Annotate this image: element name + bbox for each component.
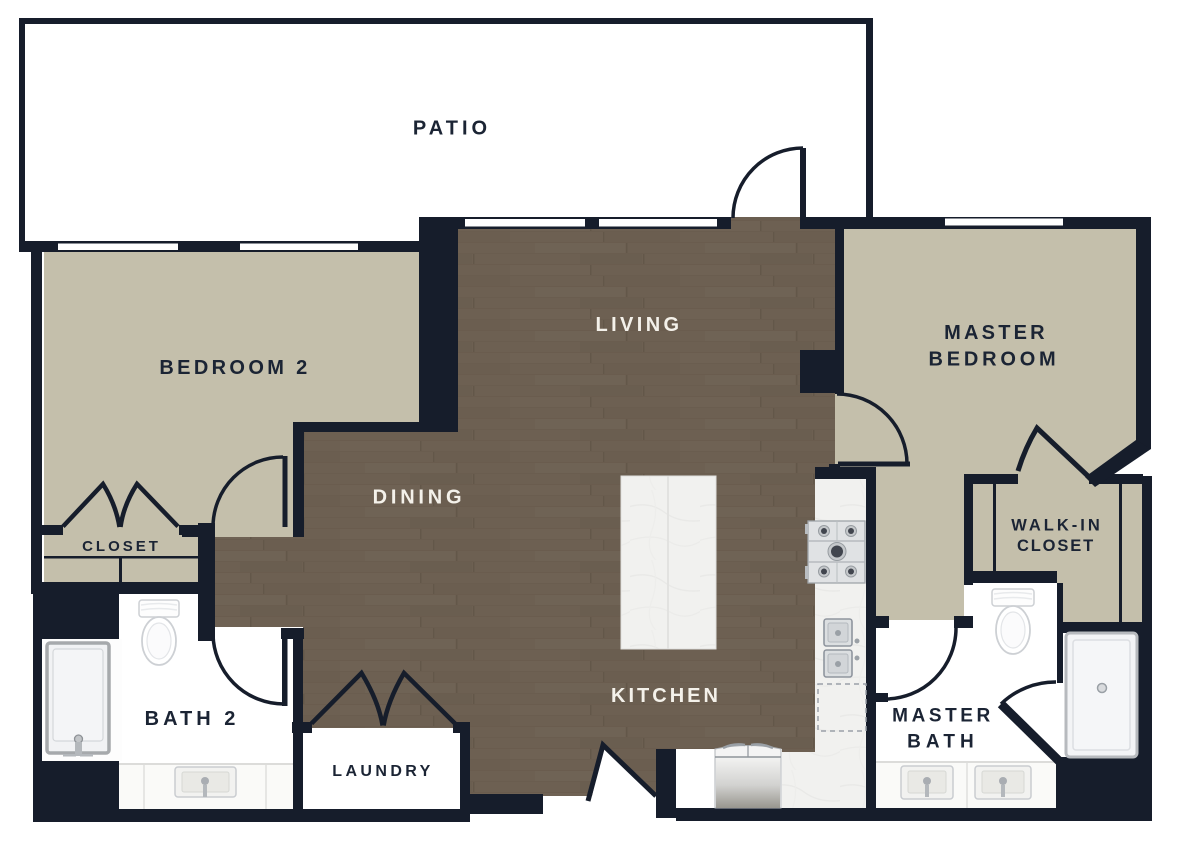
- svg-text:DINING: DINING: [373, 487, 466, 509]
- svg-text:WALK-IN: WALK-IN: [1011, 517, 1103, 535]
- svg-text:MASTER: MASTER: [944, 322, 1048, 344]
- svg-text:BATH 2: BATH 2: [145, 708, 240, 730]
- svg-text:BEDROOM: BEDROOM: [928, 349, 1059, 371]
- svg-text:BATH: BATH: [907, 732, 979, 753]
- svg-text:CLOSET: CLOSET: [1017, 537, 1095, 555]
- svg-text:MASTER: MASTER: [892, 706, 994, 727]
- svg-text:PATIO: PATIO: [413, 118, 491, 140]
- svg-text:KITCHEN: KITCHEN: [611, 685, 721, 707]
- svg-text:LAUNDRY: LAUNDRY: [332, 763, 433, 780]
- svg-text:LIVING: LIVING: [596, 314, 683, 336]
- svg-text:CLOSET: CLOSET: [82, 538, 161, 555]
- svg-text:BEDROOM 2: BEDROOM 2: [159, 357, 310, 379]
